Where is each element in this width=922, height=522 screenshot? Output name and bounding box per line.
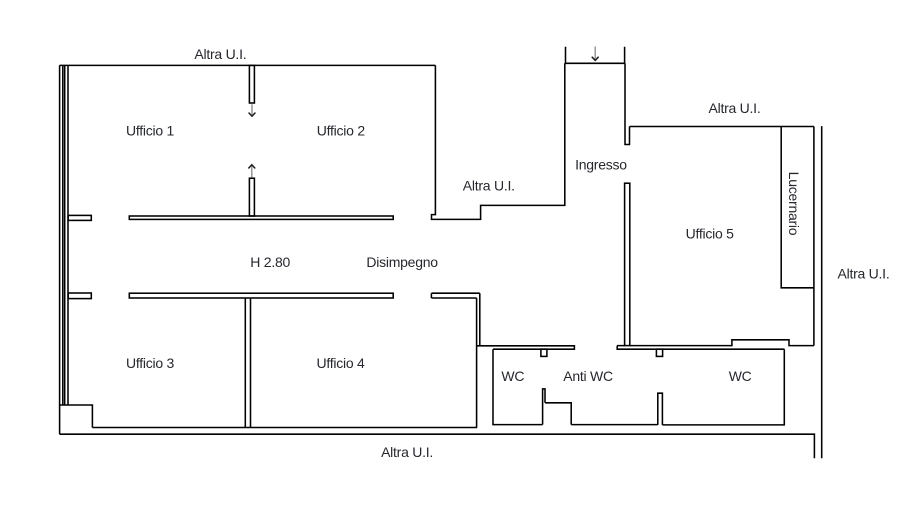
svg-text:Lucernario: Lucernario	[786, 172, 802, 236]
svg-text:WC: WC	[729, 368, 752, 384]
svg-text:Ufficio 3: Ufficio 3	[126, 355, 175, 371]
svg-text:Ingresso: Ingresso	[575, 157, 627, 173]
svg-text:Ufficio 2: Ufficio 2	[317, 123, 366, 139]
svg-text:Altra U.I.: Altra U.I.	[194, 46, 246, 62]
svg-text:Altra U.I.: Altra U.I.	[463, 177, 515, 193]
svg-text:Altra U.I.: Altra U.I.	[838, 265, 890, 281]
svg-text:Altra U.I.: Altra U.I.	[381, 444, 433, 460]
svg-text:H 2.80: H 2.80	[250, 254, 290, 270]
svg-text:Ufficio 5: Ufficio 5	[686, 226, 735, 242]
svg-text:Altra U.I.: Altra U.I.	[709, 100, 761, 116]
svg-text:WC: WC	[501, 368, 524, 384]
svg-text:Disimpegno: Disimpegno	[366, 254, 438, 270]
svg-text:Anti WC: Anti WC	[563, 368, 613, 384]
svg-text:Ufficio 1: Ufficio 1	[126, 123, 175, 139]
svg-text:Ufficio 4: Ufficio 4	[317, 355, 366, 371]
